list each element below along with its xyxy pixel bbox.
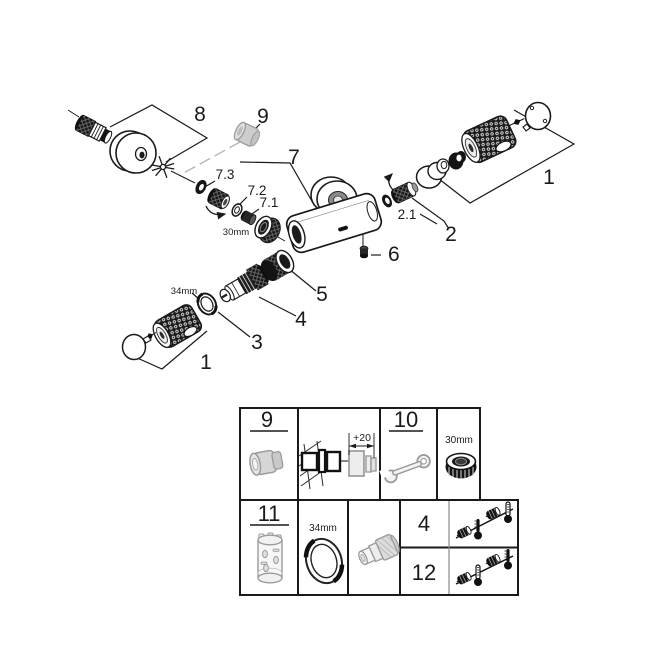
check-valve	[205, 187, 231, 211]
cell10-number: 10	[394, 407, 418, 432]
part8-escutcheon	[110, 131, 156, 173]
leader-part2-1	[420, 214, 437, 224]
cell4-number: 4	[418, 511, 430, 536]
nut-size-label: 30mm	[445, 435, 473, 446]
bracket-part2	[412, 198, 449, 229]
label-part4: 4	[295, 308, 307, 331]
leader-part4	[259, 297, 296, 316]
leader-part5	[289, 269, 316, 291]
label-part9: 9	[257, 105, 269, 128]
exploded-parts-diagram: 8 9 7 7.3 7.2 7.1 30mm 6 1 2.1 2 5 4 3 3…	[0, 0, 650, 650]
cell12-number: 12	[412, 560, 436, 585]
part1-handle-bottom	[149, 303, 204, 352]
label-part7-3: 7.3	[216, 167, 235, 182]
label-part7-1: 7.1	[260, 195, 279, 210]
end-cap-right	[523, 103, 551, 132]
label-34mm: 34mm	[171, 286, 197, 297]
part1-handle-right	[457, 114, 518, 166]
cell11-number: 11	[258, 501, 281, 526]
rotation-arrow-right	[389, 174, 393, 190]
label-part8: 8	[194, 103, 206, 126]
diagram-svg: 8 9 7 7.3 7.2 7.1 30mm 6 1 2.1 2 5 4 3 3…	[0, 0, 650, 650]
leader-part7-1	[252, 209, 259, 214]
union-nut-icon	[446, 454, 477, 479]
extension-sleeve-icon	[258, 533, 282, 583]
label-part6: 6	[388, 243, 400, 266]
leader-part3	[218, 312, 250, 337]
label-part2-1: 2.1	[398, 207, 417, 222]
part7-3-oring	[193, 178, 209, 196]
part4-thermo-cartridge	[216, 262, 272, 308]
ring-size-label: 34mm	[309, 523, 337, 534]
label-part2: 2	[445, 223, 457, 246]
label-part3: 3	[251, 331, 263, 354]
label-part1-right: 1	[543, 166, 555, 189]
end-cap-bottom	[123, 335, 152, 360]
spare-parts-table: 9	[240, 407, 518, 595]
dimension-label: +20	[353, 432, 371, 444]
label-30mm: 30mm	[223, 227, 249, 238]
part8-s-union	[73, 114, 114, 146]
cone-adapter-right	[449, 151, 467, 170]
part6-screw	[360, 246, 368, 258]
part3-ring-34mm	[194, 290, 220, 318]
label-part7: 7	[288, 146, 300, 169]
label-part5: 5	[316, 283, 328, 306]
label-part1-bottom: 1	[200, 351, 212, 374]
cell9-number: 9	[261, 407, 273, 432]
table-cell-30mm: 30mm	[445, 435, 476, 479]
